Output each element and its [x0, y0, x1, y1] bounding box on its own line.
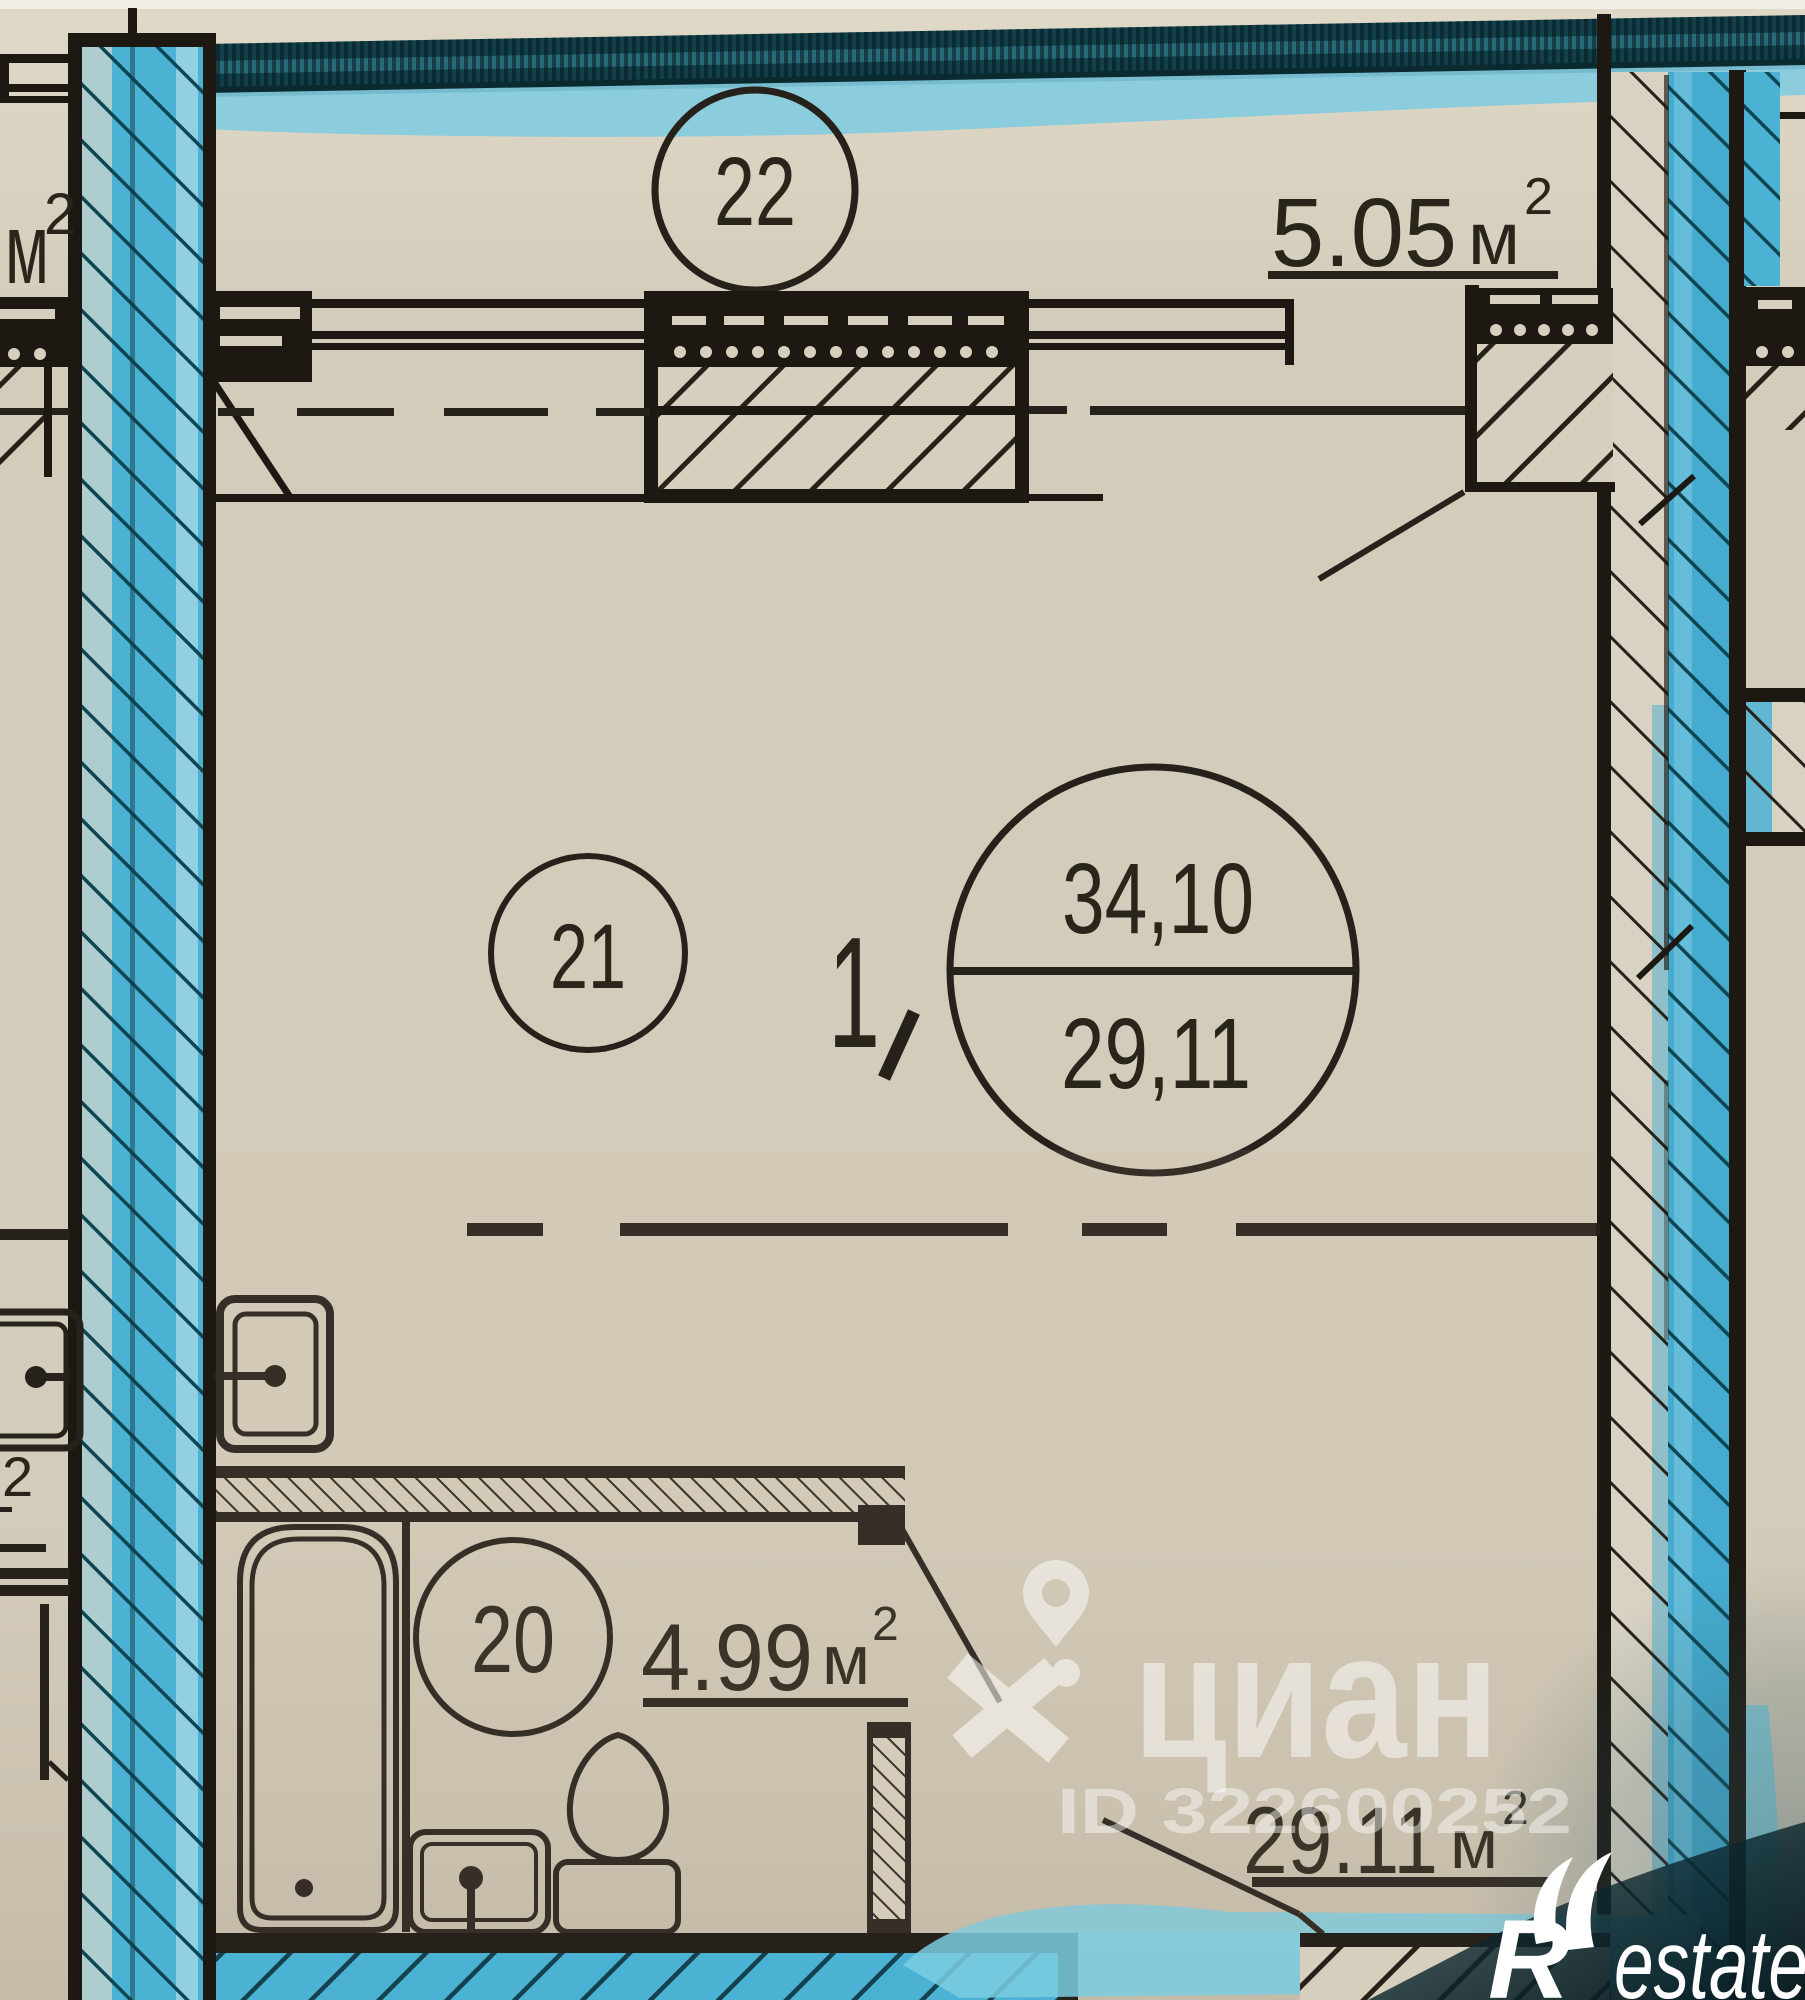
svg-text:22: 22	[714, 137, 796, 246]
svg-text:R: R	[1488, 1897, 1570, 2000]
svg-text:ID 322600252: ID 322600252	[1057, 1775, 1572, 1847]
svg-text:2: 2	[44, 182, 76, 247]
svg-text:2: 2	[2, 1445, 33, 1508]
svg-text:5.05: 5.05	[1271, 178, 1457, 287]
svg-text:21: 21	[550, 906, 626, 1008]
svg-text:м: м	[5, 193, 49, 305]
svg-text:циан: циан	[1133, 1596, 1499, 1795]
svg-text:29,11: 29,11	[1061, 998, 1251, 1110]
svg-text:34,10: 34,10	[1062, 843, 1254, 955]
svg-text:2: 2	[1524, 168, 1553, 226]
svg-text:1: 1	[828, 905, 880, 1081]
svg-text:estate: estate	[1614, 1909, 1805, 2000]
svg-text:м: м	[1468, 197, 1520, 280]
